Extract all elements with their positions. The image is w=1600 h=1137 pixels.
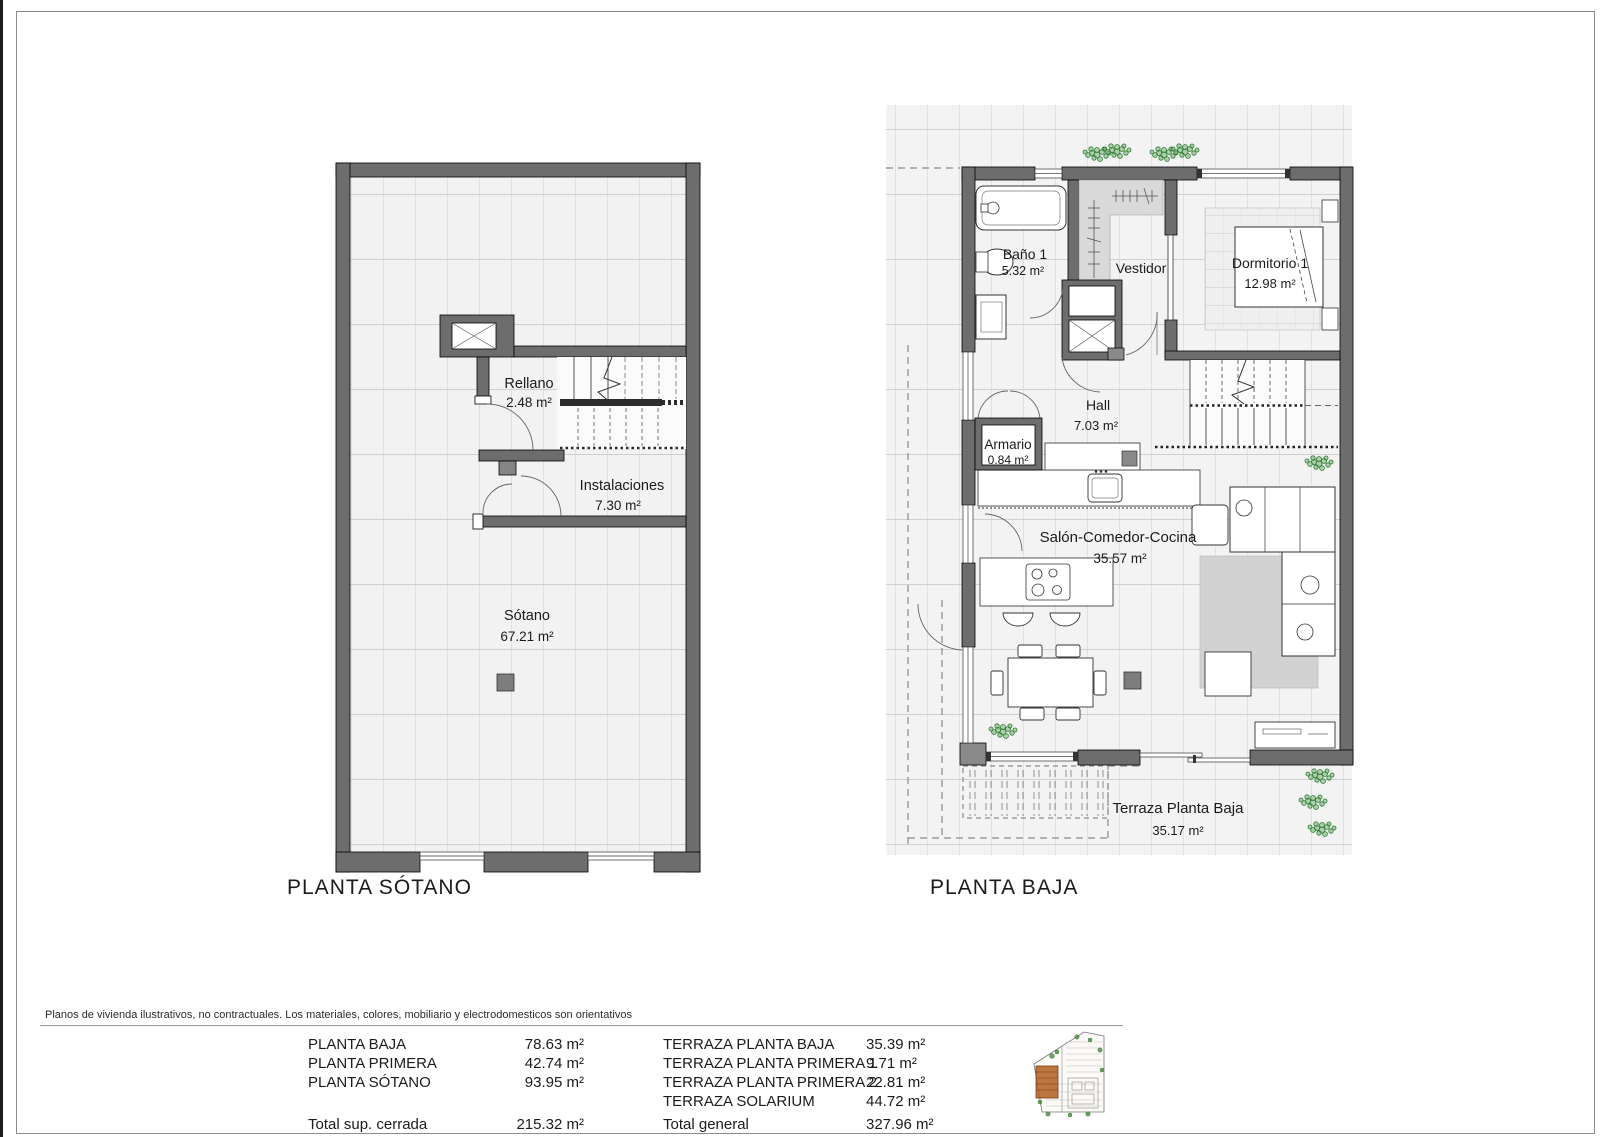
label-rellano-area: 2.48 m²	[506, 395, 552, 410]
closet-elevator-stack	[1062, 280, 1124, 360]
sotano-stairs	[557, 357, 686, 449]
label-armario: Armario	[984, 437, 1031, 452]
dining-chair	[1056, 645, 1080, 657]
summary-total-value: 327.96 m²	[866, 1116, 976, 1133]
label-armario-area: 0.84 m²	[988, 453, 1029, 467]
label-salon: Salón-Comedor-Cocina	[1040, 529, 1197, 546]
label-rellano: Rellano	[504, 376, 553, 392]
plan-title-sotano: PLANTA SÓTANO	[287, 876, 472, 900]
sideboard	[1255, 722, 1335, 748]
footer-divider	[40, 1025, 1123, 1026]
coffee-table	[1205, 652, 1251, 696]
summary-value: 35.39 m²	[866, 1036, 976, 1053]
living-area	[1192, 487, 1335, 696]
label-sotano: Sótano	[504, 608, 550, 624]
label-instalaciones: Instalaciones	[580, 478, 665, 494]
sotano-floor	[350, 177, 686, 852]
summary-value: 78.63 m²	[462, 1036, 584, 1053]
label-sotano-area: 67.21 m²	[500, 629, 554, 644]
highlighted-plot	[1036, 1066, 1058, 1098]
label-hall-area: 7.03 m²	[1074, 418, 1119, 433]
label-hall: Hall	[1086, 397, 1110, 413]
pocket-door	[1168, 235, 1173, 320]
dining-chair	[1056, 708, 1080, 720]
label-bano1-area: 5.32 m²	[1002, 264, 1044, 278]
summary-value: 93.95 m²	[462, 1074, 584, 1091]
summary-value: 22.81 m²	[866, 1074, 976, 1091]
floorplan-sotano: Rellano 2.48 m² Instalaciones 7.30 m² Só…	[325, 150, 715, 890]
armchair	[1192, 505, 1228, 545]
pillow	[1297, 624, 1313, 640]
summary-value: 44.72 m²	[866, 1093, 976, 1110]
appliance	[1122, 451, 1137, 466]
label-terraza-area: 35.17 m²	[1152, 823, 1204, 838]
label-instalaciones-area: 7.30 m²	[595, 498, 641, 513]
cooktop	[1026, 564, 1070, 600]
nightstand	[1322, 200, 1338, 222]
summary-total-value: 215.32 m²	[462, 1116, 584, 1133]
label-bano1: Baño 1	[1003, 246, 1048, 262]
sofa-top	[1230, 487, 1335, 552]
floorplan-baja: Baño 1 5.32 m² Vestidor Dormitorio 1 12.…	[880, 100, 1360, 860]
baja-pillar	[1124, 672, 1141, 689]
dining-chair	[1018, 645, 1042, 657]
label-dormitorio1: Dormitorio 1	[1232, 255, 1308, 271]
dining-table	[1008, 658, 1093, 707]
summary-value: 42.74 m²	[462, 1055, 584, 1072]
elevator-shaft-sotano	[440, 315, 514, 357]
site-plan-thumbnail	[1022, 1026, 1110, 1118]
pillow	[1236, 500, 1252, 516]
label-salon-area: 35.57 m²	[1093, 551, 1147, 566]
vanity-sink	[976, 295, 1006, 339]
label-vestidor: Vestidor	[1116, 260, 1167, 276]
nightstand	[1322, 308, 1338, 330]
summary-value: 9.71 m²	[866, 1055, 976, 1072]
dining-chair	[1020, 708, 1044, 720]
baja-corner-pillars	[960, 743, 986, 765]
disclaimer-text: Planos de vivienda ilustrativos, no cont…	[45, 1009, 632, 1021]
label-dormitorio1-area: 12.98 m²	[1244, 276, 1296, 291]
plan-title-baja: PLANTA BAJA	[930, 876, 1078, 900]
page-edge-shadow	[0, 0, 3, 1137]
label-terraza: Terraza Planta Baja	[1113, 800, 1245, 817]
dining-chair	[991, 671, 1003, 695]
sotano-pillar	[497, 674, 514, 691]
dining-chair	[1094, 671, 1106, 695]
pillow	[1301, 576, 1319, 594]
